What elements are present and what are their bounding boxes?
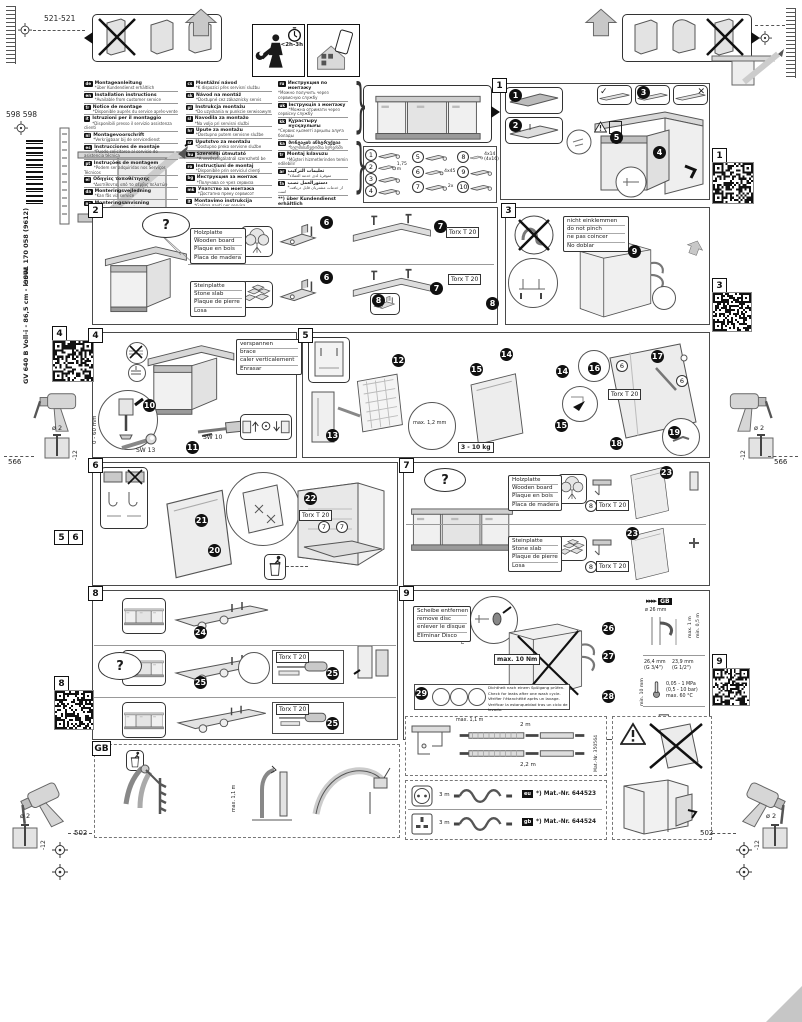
plinth-variant-thumbnail bbox=[122, 702, 166, 738]
riser-length-label: max. 1,1 m bbox=[456, 718, 483, 723]
drill-diameter-label: ø 2 bbox=[20, 812, 30, 820]
hardware-icon bbox=[377, 174, 401, 184]
step-badge: 9 bbox=[628, 245, 641, 258]
parts-list-box: 121,75 m34 564x4572x 84x14 (4x16)910 bbox=[363, 146, 497, 203]
language-note: *Dostupno preko servisne službe bbox=[186, 145, 272, 150]
section-2-label: 2 bbox=[88, 203, 103, 218]
section-7-label: 7 bbox=[399, 458, 414, 473]
section-5-label: 5 bbox=[298, 328, 313, 343]
language-note: *Disponibili presso il servizio assisten… bbox=[84, 122, 178, 131]
torx-tool-chip: Torx T 20 bbox=[596, 561, 629, 572]
thread-size-label: 23,9 mm bbox=[672, 660, 694, 665]
language-code-badge: ka bbox=[278, 141, 286, 147]
step-badge: 25 bbox=[326, 717, 339, 730]
stone-material-label: SteinplatteStone slabPlaque de pierreLos… bbox=[508, 536, 562, 572]
pilot-hole-icon bbox=[762, 822, 788, 852]
section-4-label: 4 bbox=[88, 328, 103, 343]
torx-tool-chip: Torx T 20 bbox=[276, 704, 309, 715]
language-code-badge: sl bbox=[186, 116, 193, 122]
stopwatch-icon bbox=[287, 27, 302, 42]
language-code-badge: pl bbox=[186, 105, 193, 111]
brace-line: verspannen bbox=[240, 341, 298, 349]
hose-mat-number: Mat.-Nr. 350564 bbox=[594, 720, 599, 772]
part-item: 4 bbox=[365, 185, 410, 197]
cord-length-label: 3 m bbox=[439, 792, 450, 798]
language-entry: csMontážní návod*K dispozici přes servis… bbox=[186, 80, 272, 91]
no-panel-sketch bbox=[644, 720, 706, 772]
torx-tool-chip: Torx T 20 bbox=[276, 652, 309, 663]
language-note: *Disponible auprès du service après-vent… bbox=[84, 110, 178, 115]
qr-label-8: 8 bbox=[54, 676, 69, 691]
step-badge: 19 bbox=[668, 426, 681, 439]
language-note: *Galima gauti per servisą bbox=[186, 204, 272, 206]
rail-sketch bbox=[598, 89, 631, 103]
parts-column: 121,75 m34 bbox=[364, 147, 411, 202]
phone-scan-qr-icon bbox=[308, 25, 358, 75]
language-code-badge: lt bbox=[186, 199, 192, 205]
thread-size-label: 26,4 mm bbox=[644, 660, 666, 665]
language-entry: **) über Kundendienst erhältlich**) Avai… bbox=[278, 195, 348, 206]
step-badge: 22 bbox=[304, 492, 317, 505]
door-weight-chip: 3 - 10 kg bbox=[458, 442, 494, 453]
sink-hose-arc-sketch bbox=[310, 752, 392, 828]
stone-icon bbox=[558, 537, 586, 559]
brace-line: caler verticalement bbox=[240, 357, 298, 365]
language-note: *Podem ser adquiridas nos Serviços Técni… bbox=[84, 166, 178, 175]
language-code-badge: mk bbox=[186, 187, 196, 193]
handle-detail-circle bbox=[662, 418, 700, 456]
qr-label-9: 9 bbox=[712, 654, 727, 669]
language-entry: roInstrucţiuni de montaj*Disponibile pri… bbox=[186, 162, 272, 174]
language-entry: frNotice de montage*Disponible auprès du… bbox=[84, 103, 178, 115]
parts-column: 84x14 (4x16)910 bbox=[456, 147, 502, 202]
part-note: 4x14 (4x16) bbox=[484, 152, 501, 162]
trash-icon bbox=[265, 555, 285, 578]
step-badge: 2 bbox=[509, 119, 522, 132]
arrow-up-icon bbox=[184, 8, 218, 37]
plug-type-badge: eu bbox=[522, 790, 533, 798]
thread-size-label: (G 3/4") bbox=[644, 666, 663, 671]
caution-line: do not pinch bbox=[567, 226, 625, 234]
crosshair-icon bbox=[14, 121, 28, 135]
leak-line: Dichtheit nach einem Spülgang prüfen. bbox=[488, 685, 568, 691]
drain-hose-sketch bbox=[646, 615, 686, 649]
dimension-right-mid: 566 bbox=[774, 458, 787, 466]
part-number: 1 bbox=[365, 149, 377, 161]
dimension-bottom-left: 502 bbox=[74, 829, 87, 837]
dimension-line bbox=[755, 25, 785, 26]
part-number: 3 bbox=[365, 173, 377, 185]
check-leak-icon bbox=[468, 688, 486, 706]
temp-label: max. 60 °C bbox=[666, 694, 693, 699]
step-badge: 15 bbox=[470, 363, 483, 376]
language-entry: enInstallation instructions*Available fr… bbox=[84, 91, 178, 103]
spine-model-label: GV 640 B Voll-i - 86,5 cm - k.SW bbox=[22, 288, 30, 384]
wrench-size-label: SW 13 bbox=[136, 447, 155, 454]
arrow-up-icon bbox=[584, 8, 618, 37]
step-badge: 12 bbox=[392, 354, 405, 367]
dimension-left-mid: 566 bbox=[8, 458, 21, 466]
language-entry: srUputstvo za montažu*Dostupno preko ser… bbox=[186, 138, 272, 150]
cord-mat-number: *) Mat.-Nr. 644523 bbox=[536, 791, 596, 797]
disc-line: enlever le disque bbox=[417, 624, 467, 632]
part-number: 5 bbox=[412, 151, 424, 163]
language-entry: hrUpute za montažu*Dostupno putem servis… bbox=[186, 126, 272, 138]
qr-code-section-3 bbox=[712, 292, 752, 332]
language-entry: arتعليمات التركيب*متوفرة لدى خدمة العملا… bbox=[278, 167, 348, 179]
language-code-badge: ro bbox=[186, 164, 194, 170]
material-line: Stone slab bbox=[512, 546, 558, 554]
brace-line: brace bbox=[240, 349, 298, 357]
hardware-icon bbox=[469, 182, 493, 192]
part-item: 10 bbox=[457, 179, 501, 194]
drill-depth-label: -12 bbox=[754, 826, 761, 850]
installer-service-box: <2h-3h bbox=[252, 24, 305, 77]
part-item: 1 bbox=[365, 149, 410, 161]
sink-unit-sketch bbox=[410, 722, 452, 760]
qr-label-4: 4 bbox=[52, 326, 67, 341]
language-entry: kkҚұрастыру нұсқаулығы*Сервис қызметі ар… bbox=[278, 117, 348, 139]
part-item: 5 bbox=[412, 149, 456, 164]
warning-triangle-icon bbox=[594, 121, 607, 133]
step-badge: 17 bbox=[651, 350, 664, 363]
language-note: *Disponibile prin serviciul clienţi bbox=[186, 169, 272, 174]
cabinet-thumb bbox=[123, 599, 165, 632]
part-item: 3 bbox=[365, 173, 410, 185]
pressure-label: (0,5 - 10 bar) bbox=[666, 688, 698, 693]
spec-divider bbox=[643, 706, 705, 707]
language-entry: daMonteringsvejledning*Kan fås via servi… bbox=[84, 187, 178, 199]
wrench-installer-icon bbox=[255, 29, 291, 73]
hardware-icon bbox=[377, 162, 397, 172]
no-hands-icon bbox=[450, 688, 468, 706]
row-divider bbox=[406, 524, 706, 525]
kitchen-cabinets-sketch bbox=[408, 492, 516, 560]
crosshair-icon bbox=[736, 864, 752, 880]
drill-diameter-label: ø 2 bbox=[52, 424, 62, 432]
dimension-line bbox=[4, 456, 34, 457]
language-code-badge: en bbox=[84, 93, 93, 99]
torx-tool-chip: Torx T 20 bbox=[596, 500, 629, 511]
leak-check-text: Dichtheit nach einem Spülgang prüfen. Ch… bbox=[488, 685, 568, 713]
gb-section-label: GB bbox=[92, 741, 111, 756]
instruction-sheet-page: { "page": { "install_time": "<2h-3h", "s… bbox=[0, 0, 802, 1022]
language-title: **) über Kundendienst erhältlich bbox=[278, 197, 348, 206]
language-code-badge: bg bbox=[186, 175, 195, 181]
door-hooks-thumbnail bbox=[308, 337, 350, 383]
hardware-icon bbox=[424, 152, 448, 162]
language-note: *Διατίθενται από το σέρβις πελατών bbox=[84, 183, 178, 188]
material-line: Stone slab bbox=[194, 291, 242, 299]
language-code-badge: ar bbox=[278, 169, 286, 175]
language-note: *از خدمات مشتریان قابل دریافت است bbox=[278, 186, 348, 195]
clearance-label: min. 10 mm bbox=[640, 676, 645, 706]
step-badge: 14 bbox=[556, 365, 569, 378]
pilot-hole-icon bbox=[12, 822, 38, 852]
disc-line: Eliminar Disco bbox=[417, 633, 467, 640]
wood-material-label: HolzplatteWooden boardPlaque en boisPlac… bbox=[190, 228, 246, 264]
language-code-badge: fr bbox=[84, 105, 91, 111]
language-entry: nlMontagevoorschrift*Verkrijgbaar bij de… bbox=[84, 131, 178, 143]
no-pinch-icon bbox=[513, 214, 555, 256]
language-entry: slNavodila za montažo*Na voljo pri servi… bbox=[186, 114, 272, 126]
crosshair-icon bbox=[52, 842, 68, 858]
material-line: Holzplatte bbox=[194, 230, 242, 238]
fixing-bracket-sketch bbox=[277, 275, 321, 309]
language-code-badge: it bbox=[84, 116, 90, 122]
ruler-top-left-icon bbox=[6, 6, 16, 64]
brace-glyph: } bbox=[354, 77, 368, 135]
section-3-label: 3 bbox=[501, 203, 516, 218]
drain-min-label: min. 0,5 m bbox=[696, 612, 701, 638]
step-badge: 3 bbox=[637, 86, 650, 99]
caution-line: nicht einklemmen bbox=[567, 218, 625, 226]
gb-ref-row: ▸▸▸▸ GB bbox=[646, 597, 672, 605]
hardware-icon bbox=[424, 182, 448, 192]
disc-line: Scheibe entfernen bbox=[417, 608, 467, 616]
language-code-badge: hr bbox=[186, 128, 194, 134]
wrench-size-label: SW 10 bbox=[203, 434, 222, 441]
step-badge: 16 bbox=[588, 362, 601, 375]
dishwasher-brace-sketch bbox=[142, 340, 238, 420]
pencil-mark-sketch-right bbox=[710, 42, 786, 88]
material-line: Plaque de pierre bbox=[194, 299, 242, 307]
section-8-label: 8 bbox=[88, 586, 103, 601]
step-badge: 27 bbox=[602, 650, 615, 663]
cord-length-label: 3 m bbox=[439, 820, 450, 826]
qr-label-3: 3 bbox=[712, 278, 727, 293]
language-entry: elΟδηγίες τοποθέτησης*Διατίθενται από το… bbox=[84, 175, 178, 187]
wood-material-label: HolzplatteWooden boardPlaque en boisPlac… bbox=[508, 475, 562, 511]
torx-tool-chip: Torx T 20 bbox=[448, 274, 481, 285]
no-pinch-label: nicht einklemmendo not pinchne pas coinc… bbox=[563, 216, 629, 252]
rail-sketch bbox=[674, 89, 707, 103]
language-entry: bgИнструкция за монтаж*Получава се чрез … bbox=[186, 173, 272, 185]
step-badge: 4 bbox=[653, 146, 666, 159]
part-number: 9 bbox=[457, 166, 469, 178]
ruler-top-right-icon bbox=[786, 8, 796, 78]
dimension-line bbox=[768, 456, 798, 457]
language-entry: ukІнструкція з монтажу*Можна отримати че… bbox=[278, 101, 348, 117]
language-entry: ptInstruções de montagem*Podem ser adqui… bbox=[84, 159, 178, 175]
fixing-bracket-sketch bbox=[277, 220, 321, 254]
dimension-top-left: 521-521 bbox=[44, 14, 75, 23]
drill-depth-label: -12 bbox=[40, 826, 47, 850]
language-entry: ruИнструкция по монтажу*Можно получить ч… bbox=[278, 80, 348, 101]
language-code-badge: uk bbox=[278, 103, 287, 109]
question-cloud: ? bbox=[424, 468, 466, 492]
language-code-badge: es bbox=[84, 145, 92, 151]
part-ref-circle: 6 bbox=[616, 360, 628, 372]
language-entry: plInstrukcja montażu*Do uzyskania w punk… bbox=[186, 103, 272, 115]
language-entry: trMontaj kılavuzu*Müşteri hizmetlerinden… bbox=[278, 150, 348, 166]
language-entry: faدستورالعمل نصب*از خدمات مشتریان قابل د… bbox=[278, 179, 348, 195]
no-tools-icon bbox=[432, 688, 450, 706]
material-line: Steinplatte bbox=[512, 538, 558, 546]
step-badge: 6 bbox=[320, 216, 333, 229]
material-line: Plaque de pierre bbox=[512, 554, 558, 562]
dimension-bottom-right: 502 bbox=[700, 829, 713, 837]
plinth-variant-thumbnail bbox=[122, 598, 166, 634]
language-entry: huSzerelési útmutató*A vevőszolgálatnál … bbox=[186, 150, 272, 162]
edge-strip-icon bbox=[687, 470, 701, 492]
leveling-icons bbox=[241, 415, 291, 437]
pointer-triangle-icon bbox=[84, 32, 93, 44]
part-item: 64x45 bbox=[412, 164, 456, 179]
cord-mat-number: *) Mat.-Nr. 644524 bbox=[536, 819, 596, 825]
language-note: *Puede solicitarse al servicio de asiste… bbox=[84, 150, 178, 159]
language-note: *Dostupné cez zákaznícky servis bbox=[186, 98, 272, 103]
part-number: 4 bbox=[365, 185, 377, 197]
counter-screw-sketch bbox=[348, 213, 434, 261]
language-entry: ltMontavimo instrukcija*Galima gauti per… bbox=[186, 197, 272, 206]
drain-hose-extension-sketch bbox=[456, 730, 588, 741]
thermometer-icon bbox=[652, 680, 661, 698]
material-line: Plaque en bois bbox=[512, 493, 558, 501]
page-dogear bbox=[766, 986, 802, 1022]
step-badge: 8 bbox=[486, 297, 499, 310]
drill-diameter-label: ø 2 bbox=[766, 812, 776, 820]
stone-material-label: SteinplatteStone slabPlaque de pierreLos… bbox=[190, 281, 246, 317]
language-code-badge: sr bbox=[186, 140, 193, 146]
part-ref-circle: 6 bbox=[676, 375, 688, 387]
brace-label: verspannenbracecaler verticalementEnrasa… bbox=[236, 339, 302, 375]
drill-depth-label: -12 bbox=[72, 436, 79, 460]
torx-tool-chip: Torx T 20 bbox=[299, 510, 332, 521]
plug-type-badge: gb bbox=[522, 818, 533, 826]
detail-circle-feet bbox=[508, 258, 558, 308]
part-note: 4x45 bbox=[444, 169, 455, 174]
step-badge: 1 bbox=[509, 89, 522, 102]
barcode bbox=[26, 140, 43, 204]
language-entry: kaმონტაჟის ინსტრუქცია*ხელმისაწვდომია სერ… bbox=[278, 139, 348, 151]
qr-label-1: 1 bbox=[712, 148, 727, 163]
material-line: Placa de madera bbox=[512, 502, 558, 509]
kitchen-overview-box bbox=[363, 85, 492, 143]
language-entry: skNávod na montáž*Dostupné cez zákazníck… bbox=[186, 91, 272, 103]
stone-icon bbox=[242, 282, 272, 306]
plinth-rail-sketch bbox=[172, 596, 272, 638]
step-badge: 28 bbox=[602, 690, 615, 703]
language-code-badge: pt bbox=[84, 161, 92, 167]
language-list-column-3: ruИнструкция по монтажу*Можно получить ч… bbox=[278, 80, 348, 206]
pilot-hole-icon bbox=[44, 432, 70, 462]
dimension-line bbox=[33, 30, 85, 31]
row-divider bbox=[94, 645, 396, 646]
drill-depth-label: -12 bbox=[740, 436, 747, 460]
gap-dimension-label: max. 1,2 mm bbox=[413, 420, 446, 426]
brace-line: Enrasar bbox=[240, 366, 298, 373]
language-code-badge: el bbox=[84, 177, 91, 183]
row-divider bbox=[188, 264, 494, 265]
step-badge: 13 bbox=[326, 429, 339, 442]
language-entry: mkУпатство за монтажа*Достапно преку сер… bbox=[186, 185, 272, 197]
gb-ref-badge: GB bbox=[658, 598, 672, 605]
language-code-badge: sk bbox=[186, 93, 194, 99]
step-badge: 5 bbox=[610, 131, 623, 144]
crosshair-icon bbox=[18, 23, 32, 37]
power-cord-icon bbox=[452, 786, 514, 806]
step-badge: 11 bbox=[186, 441, 199, 454]
step-badge: 26 bbox=[602, 622, 615, 635]
remove-disc-label: Scheibe entfernenremove discenlever le d… bbox=[413, 606, 471, 642]
tree-icon bbox=[242, 227, 272, 256]
material-line: Wooden board bbox=[512, 485, 558, 493]
language-note: *Можна отримати через сервісну службу bbox=[278, 108, 348, 117]
material-line: Wooden board bbox=[194, 238, 242, 246]
foot-range-label: 0 - 60 mm bbox=[92, 400, 98, 444]
hook-compare-box bbox=[100, 467, 148, 529]
part-number: 7 bbox=[412, 181, 424, 193]
connector-icon bbox=[687, 536, 701, 550]
row-divider bbox=[94, 697, 396, 698]
torx-tool-chip: Torx T 20 bbox=[608, 389, 641, 400]
language-note: *Müşteri hizmetlerinden temin edilebilir bbox=[278, 158, 348, 167]
connector-line bbox=[286, 566, 308, 567]
disc-line: remove disc bbox=[417, 616, 467, 624]
language-entry: deMontageanleitung*über Kundendienst erh… bbox=[84, 80, 178, 91]
socket-gb-icon bbox=[411, 813, 433, 835]
language-code-badge: kk bbox=[278, 119, 286, 125]
material-line: Steinplatte bbox=[194, 283, 242, 291]
material-line: Placa de madera bbox=[194, 255, 242, 262]
rail-ok-thumbnail: ✓ bbox=[597, 85, 632, 105]
step-badge: 24 bbox=[194, 626, 207, 639]
gb-hose-height-label: max. 1,1 m bbox=[232, 772, 237, 812]
language-code-badge: nl bbox=[84, 133, 91, 139]
pliers-cut-sketch bbox=[112, 760, 182, 832]
tilted-door-sketch bbox=[460, 372, 532, 446]
qr-code-section-8 bbox=[54, 690, 94, 730]
hardware-icon bbox=[377, 186, 401, 196]
install-under-counter-sketch bbox=[565, 106, 707, 198]
language-code-badge: tr bbox=[278, 152, 285, 158]
step-badge: 10 bbox=[143, 399, 156, 412]
leak-line: Verificar la estanqueidad tras un ciclo … bbox=[488, 702, 568, 713]
question-cloud: ? bbox=[142, 212, 190, 238]
language-note: *Сервис қызметі арқылы алуға болады bbox=[278, 129, 348, 138]
material-line: Plaque en bois bbox=[194, 246, 242, 254]
qr-code-section-1 bbox=[712, 162, 754, 204]
dimension-line bbox=[712, 833, 736, 834]
pointer-triangle-icon bbox=[491, 106, 500, 118]
language-note: *ხელმისაწვდომია სერვისში bbox=[278, 146, 348, 151]
row-divider bbox=[408, 809, 602, 810]
pressure-label: 0,05 - 1 MPa bbox=[666, 682, 696, 687]
part-number: 2 bbox=[365, 161, 377, 173]
part-note: 1,75 m bbox=[397, 162, 410, 172]
section-1-label: 1 bbox=[492, 78, 507, 93]
qr-code-section-4 bbox=[52, 340, 94, 382]
step-badge: 21 bbox=[195, 514, 208, 527]
step-badge: 14 bbox=[500, 348, 513, 361]
margin-marker-5: 5 bbox=[54, 530, 69, 545]
language-note: *Можно получить через сервисную службу bbox=[278, 91, 348, 100]
template-grid-sketch bbox=[352, 372, 406, 434]
step-badge: 20 bbox=[208, 544, 221, 557]
drain-diameter-label: ø 26 mm bbox=[645, 608, 666, 613]
hose-bottom-length-label: 2,2 m bbox=[520, 762, 536, 768]
install-time-label: <2h-3h bbox=[281, 42, 303, 48]
counter-edge-detail bbox=[591, 472, 615, 500]
step-badge: 6 bbox=[320, 271, 333, 284]
step-badge: 7 bbox=[430, 282, 443, 295]
language-note: *A vevőszolgálatnál szerezhető be bbox=[186, 157, 272, 162]
language-code-badge: ru bbox=[278, 81, 286, 87]
part-ref-circle: 7 bbox=[318, 521, 330, 533]
step-badge: 23 bbox=[626, 527, 639, 540]
material-line: Losa bbox=[194, 308, 242, 315]
